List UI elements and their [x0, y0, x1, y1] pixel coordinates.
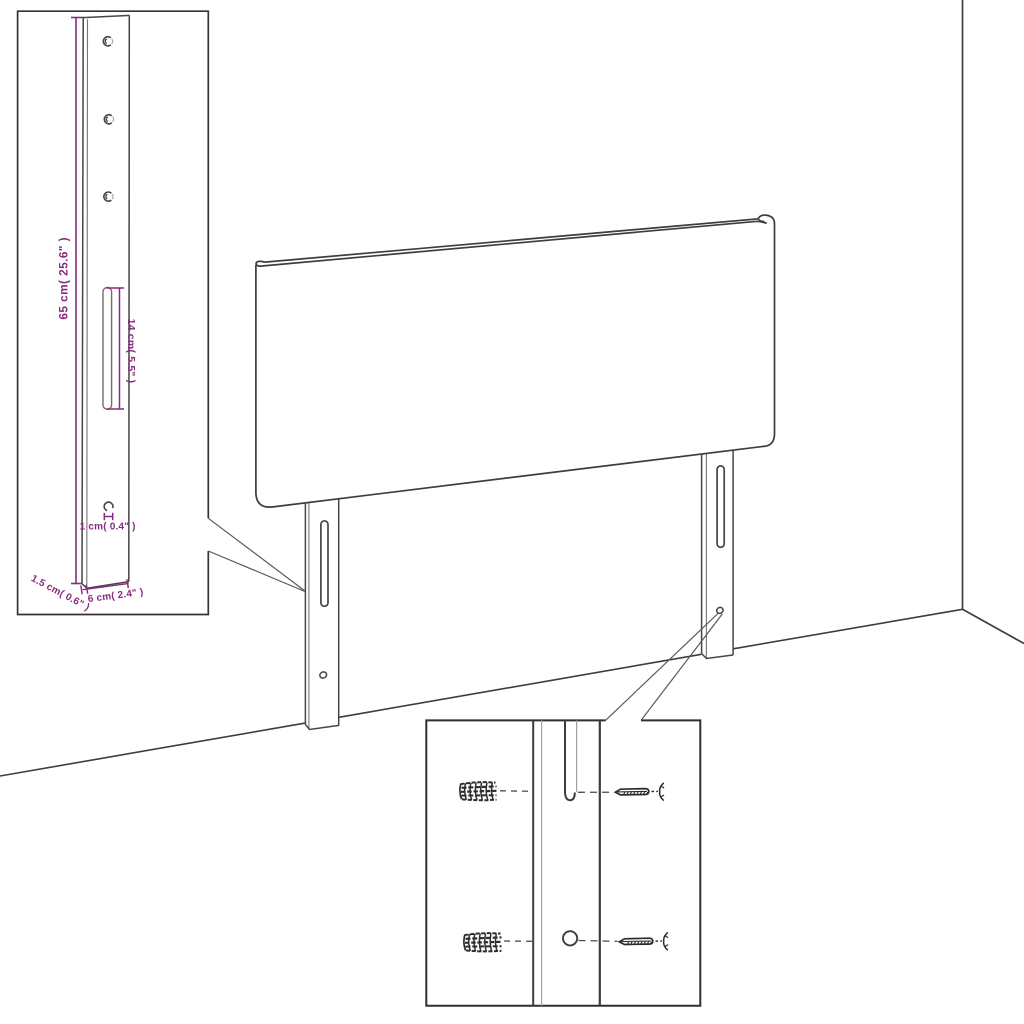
svg-text:14 cm( 5.5" ): 14 cm( 5.5" )	[125, 319, 137, 384]
svg-text:1 cm( 0.4" ): 1 cm( 0.4" )	[80, 522, 136, 533]
svg-text:65 cm( 25.6" ): 65 cm( 25.6" )	[56, 237, 70, 320]
